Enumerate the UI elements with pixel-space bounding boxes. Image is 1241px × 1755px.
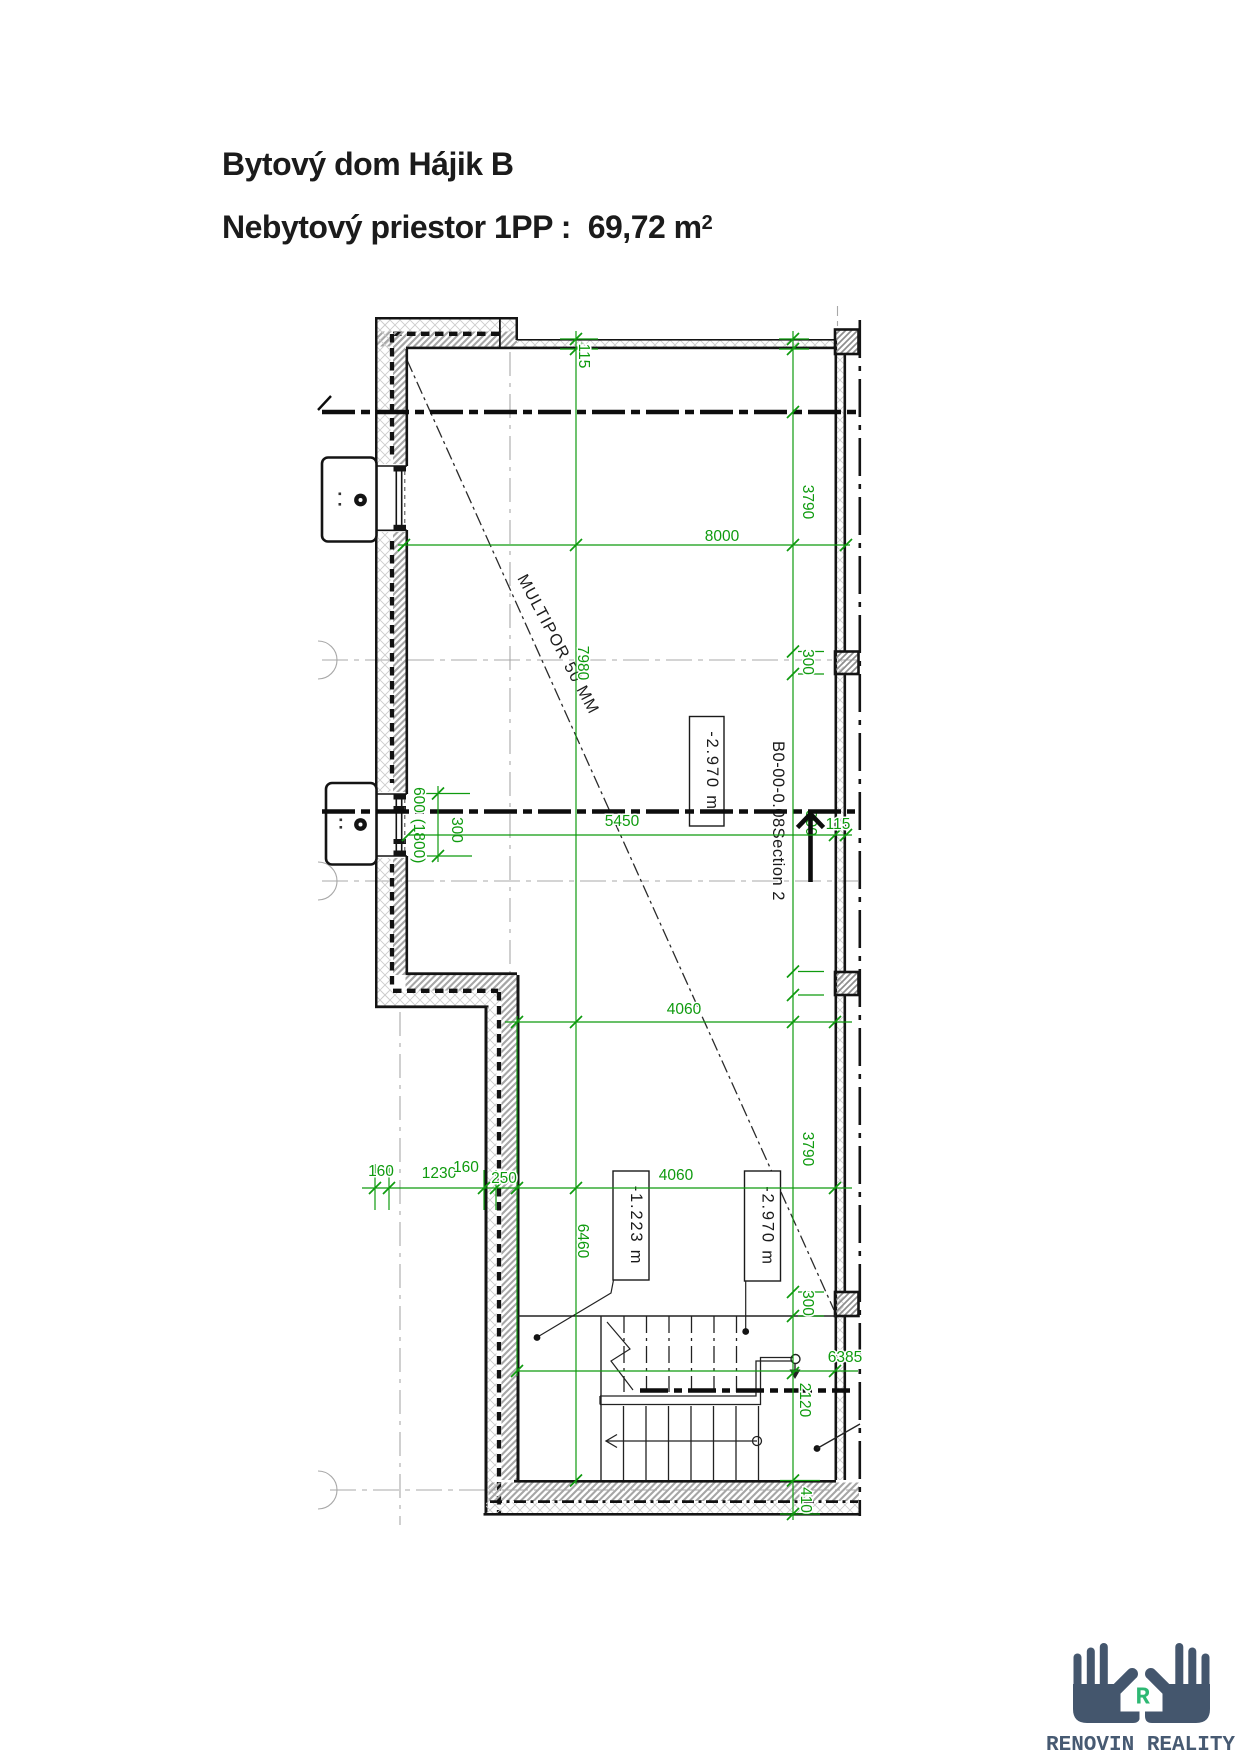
svg-text:600: 600 (410, 787, 427, 813)
svg-text:1230: 1230 (422, 1165, 457, 1182)
svg-text:6460: 6460 (574, 1224, 591, 1259)
svg-text:115: 115 (575, 344, 592, 369)
svg-text:8000: 8000 (705, 528, 740, 545)
svg-text:3790: 3790 (799, 1132, 816, 1167)
svg-text:B0-00-0.08Section 2: B0-00-0.08Section 2 (769, 741, 787, 901)
svg-text:410: 410 (797, 1487, 814, 1513)
svg-text:3790: 3790 (799, 485, 816, 520)
svg-text:4060: 4060 (667, 1001, 702, 1018)
svg-text:2120: 2120 (796, 1383, 813, 1418)
svg-text:5450: 5450 (605, 813, 640, 830)
svg-text:115: 115 (826, 816, 851, 833)
svg-text:300: 300 (799, 1290, 816, 1316)
svg-text:160: 160 (368, 1163, 394, 1180)
svg-text:4060: 4060 (659, 1167, 694, 1184)
svg-text:-1.223 m: -1.223 m (627, 1186, 645, 1266)
svg-text:R: R (1135, 1685, 1150, 1712)
svg-text:RENOVIN REALITY: RENOVIN REALITY (1046, 1734, 1235, 1755)
svg-text:-2.970 m: -2.970 m (759, 1186, 777, 1266)
svg-text:300: 300 (799, 649, 816, 675)
svg-text:300: 300 (448, 817, 465, 843)
svg-text:(1800): (1800) (410, 819, 427, 864)
svg-text:6385: 6385 (828, 1349, 862, 1366)
svg-text:250: 250 (491, 1170, 517, 1187)
svg-text:160: 160 (453, 1159, 479, 1176)
svg-text:-2.970 m: -2.970 m (703, 731, 721, 811)
svg-text:7980: 7980 (574, 646, 591, 681)
